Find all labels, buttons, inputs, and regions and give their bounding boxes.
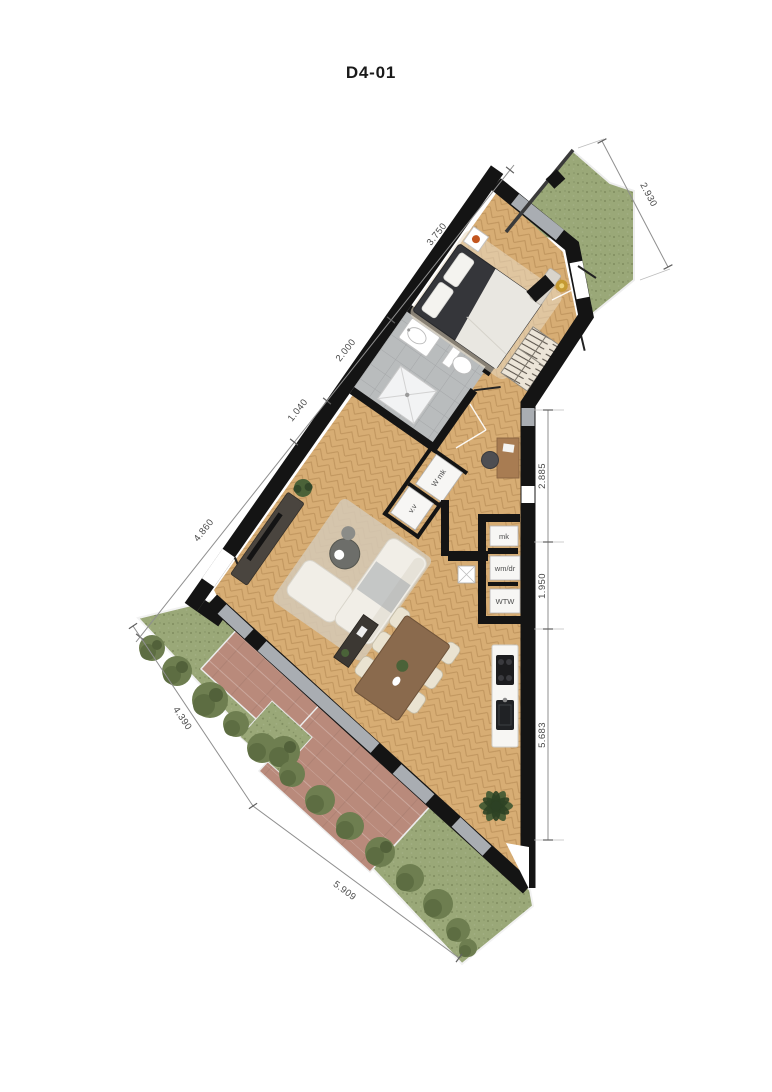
dim-1950: 1.950 [537, 573, 548, 599]
cooktop [496, 655, 514, 685]
bush [279, 761, 305, 787]
bush [336, 812, 364, 840]
bush [162, 656, 192, 686]
closet-wtw-label: WTW [496, 597, 516, 606]
desk-papers [502, 443, 514, 452]
bush [223, 711, 249, 737]
dim-2885: 2.885 [537, 463, 548, 489]
plan-title: D4-01 [346, 63, 396, 82]
floorplan-page: D4-01 [0, 0, 772, 1092]
bush [192, 682, 228, 718]
bush [305, 785, 335, 815]
bush [396, 864, 424, 892]
bush [423, 889, 453, 919]
desk-chair [482, 452, 499, 469]
dim-5683: 5.683 [537, 722, 548, 748]
bush [446, 918, 470, 942]
closet-mk-label: mk [499, 532, 509, 541]
floorplan-drawing: D4-01 [0, 0, 772, 1092]
kitchen [492, 645, 518, 747]
bush [365, 837, 395, 867]
closet-wmdr-label: wm/dr [494, 564, 516, 573]
hall-door-leaf [458, 566, 475, 583]
